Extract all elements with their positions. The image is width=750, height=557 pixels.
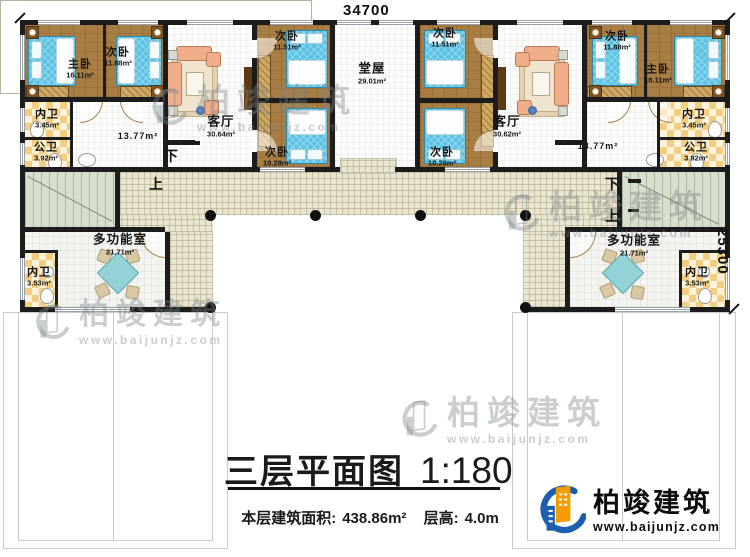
column — [520, 210, 531, 221]
window — [20, 35, 25, 80]
window — [615, 307, 690, 312]
lower-floor-outline — [3, 312, 228, 549]
column — [310, 210, 321, 221]
floor-area-value: 438.86m² — [342, 510, 406, 527]
wall — [25, 227, 165, 232]
nightstand — [26, 26, 39, 39]
label-bath-public-right: 公卫3.92m² — [684, 141, 708, 162]
pillow — [307, 149, 323, 160]
sofa — [167, 62, 182, 106]
toilet — [708, 121, 722, 138]
blanket — [288, 110, 326, 135]
brand-logo-icon — [534, 484, 586, 540]
column — [205, 210, 216, 221]
title-scale: 1:180 — [420, 450, 513, 491]
label-master-right: 主卧16.11m² — [644, 63, 672, 84]
side-table — [168, 50, 178, 60]
wall — [679, 253, 682, 307]
stair-down-right: 下 — [605, 174, 619, 194]
column — [415, 210, 426, 221]
cabinet — [498, 67, 506, 110]
window — [670, 20, 712, 25]
dimension-top: 34700 — [343, 2, 390, 19]
wall — [252, 152, 257, 167]
window — [437, 20, 480, 25]
blanket — [676, 38, 694, 84]
hall-threshold — [340, 158, 397, 174]
dimension-tick — [724, 12, 735, 23]
side-table — [168, 106, 178, 116]
stair-up-right: 上 — [605, 206, 619, 226]
chair — [125, 285, 140, 300]
nightstand — [589, 26, 602, 39]
cabinet — [244, 67, 252, 110]
window — [20, 108, 25, 132]
label-bath-inner-left: 内卫3.45m² — [35, 108, 59, 129]
title-text: 三层平面图 — [224, 453, 404, 491]
brand-website: www.baijunjz.com — [593, 520, 720, 534]
window — [517, 20, 563, 25]
blanket — [426, 60, 464, 85]
title-subline: 本层建筑面积:438.86m² 层高:4.0m — [225, 507, 515, 528]
wall — [628, 209, 639, 212]
chair — [630, 285, 645, 300]
pillow — [149, 61, 160, 79]
brand-text: 柏竣建筑 www.baijunjz.com — [593, 490, 720, 534]
wall — [420, 98, 493, 103]
label-multi-left: 多功能室21.71m² — [93, 234, 147, 257]
floor-area-label: 本层建筑面积: — [241, 510, 336, 527]
wall — [25, 97, 163, 102]
label-second-mid-right-bottom: 次卧10.28m² — [428, 146, 456, 167]
title-underline — [228, 487, 500, 490]
wall — [184, 141, 200, 145]
wall — [628, 179, 641, 183]
floor-height-label: 层高: — [424, 510, 459, 527]
outline-line — [212, 312, 213, 540]
dimension-right: 25300 — [714, 228, 731, 275]
pillow — [149, 41, 160, 59]
label-hall-left: 13.77m² — [118, 132, 159, 142]
brand-name: 柏竣建筑 — [593, 490, 720, 517]
stair-down-left: 下 — [164, 146, 178, 166]
sink — [646, 153, 664, 167]
window — [445, 167, 490, 172]
floor-plan: 主卧16.11m² 次卧11.88m² 内卫3.45m² 公卫3.92m² 13… — [0, 0, 750, 557]
wall — [115, 172, 120, 230]
wall — [493, 25, 498, 40]
window — [260, 167, 305, 172]
pillow — [708, 41, 719, 59]
blanket — [426, 110, 464, 135]
window — [379, 20, 413, 25]
plant — [528, 106, 537, 115]
label-living-left: 客厅30.64m² — [207, 116, 235, 139]
window — [20, 258, 25, 300]
wall — [644, 25, 647, 97]
armchair — [204, 100, 219, 115]
outline-line — [113, 312, 114, 540]
label-second-mid-left-bottom: 次卧10.28m² — [263, 146, 291, 167]
wall — [252, 25, 257, 40]
column — [520, 302, 531, 313]
window — [55, 307, 130, 312]
window — [725, 108, 730, 132]
stair-up-left: 上 — [149, 174, 163, 194]
label-master-left: 主卧16.11m² — [66, 58, 94, 79]
wall — [493, 152, 498, 167]
terrace-band — [120, 172, 617, 215]
wall — [565, 227, 725, 232]
armchair — [515, 52, 530, 67]
side-table — [558, 106, 568, 116]
wall — [165, 232, 170, 312]
window — [20, 143, 25, 165]
column — [205, 302, 216, 313]
wall — [55, 253, 58, 307]
coffee-table — [186, 72, 204, 96]
pillow — [708, 61, 719, 79]
wall — [330, 25, 335, 167]
wall — [660, 137, 725, 140]
watermark-logo-icon — [396, 398, 438, 444]
wall — [565, 232, 570, 312]
label-bath-wing-left: 内卫3.53m² — [27, 266, 51, 287]
plant — [196, 106, 205, 115]
label-second-mid-left-top: 次卧11.51m² — [273, 30, 301, 51]
label-hall-right: 13.77m² — [578, 142, 619, 152]
outline-line — [18, 540, 213, 541]
outline-line — [527, 540, 720, 541]
wall — [70, 102, 73, 172]
label-bath-wing-right: 内卫3.53m² — [685, 266, 709, 287]
pillow — [307, 33, 323, 44]
toilet — [698, 288, 712, 304]
wall — [257, 98, 330, 103]
blanket — [288, 60, 326, 85]
label-second-left: 次卧11.88m² — [104, 46, 132, 67]
outline-line — [527, 312, 528, 540]
window — [725, 143, 730, 165]
room-hall-center — [335, 25, 415, 167]
window — [337, 20, 371, 25]
window — [270, 20, 313, 25]
label-living-right: 客厅30.62m² — [493, 116, 521, 139]
window — [187, 20, 233, 25]
wall — [25, 250, 58, 253]
label-hall-center: 堂屋29.01m² — [358, 63, 386, 86]
sofa — [554, 62, 569, 106]
label-bath-inner-right: 内卫3.45m² — [682, 108, 706, 129]
armchair — [206, 52, 221, 67]
label-second-mid-right-top: 次卧11.51m² — [431, 27, 459, 48]
label-bath-public-left: 公卫3.92m² — [34, 141, 58, 162]
side-table — [558, 50, 568, 60]
window — [38, 20, 80, 25]
wall — [252, 58, 257, 130]
pillow — [290, 149, 306, 160]
page-title: 三层平面图1:180 — [224, 444, 513, 493]
terrace-right-strip — [523, 232, 565, 307]
wall — [587, 97, 725, 102]
window — [592, 20, 632, 25]
wall — [415, 25, 420, 167]
pillow — [31, 61, 42, 79]
window — [118, 20, 158, 25]
toilet — [40, 288, 54, 304]
outline-line — [18, 312, 19, 540]
floor-height-value: 4.0m — [465, 510, 499, 527]
pillow — [595, 61, 606, 79]
window — [725, 35, 730, 80]
sink — [78, 153, 96, 167]
label-multi-right: 多功能室21.71m² — [607, 235, 661, 258]
wall — [25, 137, 70, 140]
nightstand — [712, 26, 725, 39]
terrace-left-strip — [170, 232, 213, 307]
label-second-right: 次卧11.88m² — [603, 30, 631, 51]
brand-logo: 柏竣建筑 www.baijunjz.com — [534, 484, 720, 540]
coffee-table — [532, 72, 550, 96]
pillow — [31, 41, 42, 59]
